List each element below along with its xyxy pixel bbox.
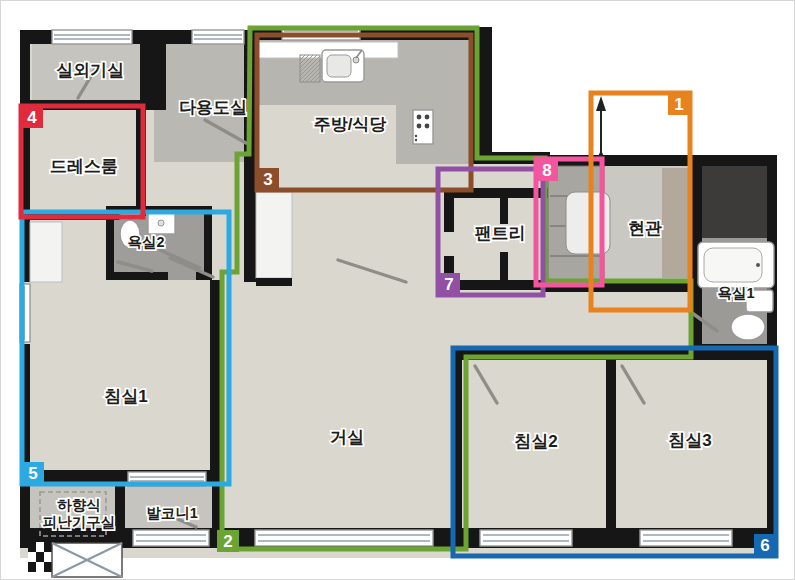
entrance-shoe-closet <box>662 168 690 278</box>
label-living-room: 거실 <box>330 428 364 447</box>
burner-2 <box>425 115 430 120</box>
window-utility-top <box>192 30 244 44</box>
svg-text:6: 6 <box>760 536 769 555</box>
label-entrance: 현관 <box>628 219 662 238</box>
wall-bed2-bed3 <box>606 360 616 530</box>
bath2-sink-drain <box>158 220 164 226</box>
wall-balcony-left <box>115 486 125 542</box>
double-swing-door <box>52 543 122 577</box>
label-utility-room: 다용도실 <box>179 98 247 117</box>
zone-badge-1[interactable]: 1 <box>668 93 690 115</box>
window-bed3-bottom <box>640 530 732 546</box>
bathtub-drain <box>756 263 760 267</box>
entrance-arrow-icon <box>596 96 606 162</box>
zone-badge-8[interactable]: 8 <box>536 159 558 181</box>
burner-1 <box>417 115 422 120</box>
wall-bath2-bottom-a <box>106 272 168 280</box>
window-outdoor-top <box>52 30 132 44</box>
label-dress-room: 드레스룸 <box>50 157 118 176</box>
label-balcony-1: 발코니1 <box>146 505 198 521</box>
zone-badge-7[interactable]: 7 <box>438 273 460 295</box>
stair-checker <box>28 542 52 572</box>
label-bedroom-1: 침실1 <box>104 387 147 406</box>
svg-text:8: 8 <box>542 161 551 180</box>
stove-dot-1 <box>415 135 417 137</box>
window-balcony-bottom <box>133 530 209 546</box>
window-living-bottom <box>255 530 433 546</box>
wall-bath2-right <box>204 206 212 280</box>
label-bathroom-1: 욕실1 <box>717 285 754 301</box>
svg-text:3: 3 <box>263 170 272 189</box>
label-outdoor-unit-room: 실외기실 <box>56 61 124 80</box>
kitchen-sink-basin <box>327 55 351 77</box>
stove-dot-2 <box>415 139 417 141</box>
wall-pantry-inner-a <box>500 198 508 224</box>
wall-pantry-inner-b <box>500 252 508 290</box>
label-evacuation-line2: 피난기구실 <box>43 514 116 530</box>
burner-4 <box>425 124 430 129</box>
label-bedroom-3: 침실3 <box>668 431 711 450</box>
bed1-closet <box>30 222 62 282</box>
zone-badge-6[interactable]: 6 <box>754 534 776 556</box>
wall-pantry-left-a <box>444 198 454 232</box>
svg-text:5: 5 <box>28 464 37 483</box>
label-pantry: 팬트리 <box>475 224 526 243</box>
bathtub-inner <box>704 248 762 282</box>
label-kitchen-dining: 주방/식당 <box>314 115 387 134</box>
hall-closet <box>256 192 292 278</box>
svg-text:7: 7 <box>444 275 453 294</box>
bath1-toilet <box>731 314 765 340</box>
duct-dark-area <box>694 166 777 240</box>
svg-text:1: 1 <box>674 95 683 114</box>
label-bedroom-2: 침실2 <box>514 432 557 451</box>
window-bed2-bottom <box>480 530 572 546</box>
svg-text:2: 2 <box>223 532 232 551</box>
hall-closet-cap <box>256 278 292 286</box>
kitchen-counter-area-right <box>396 40 474 164</box>
svg-text:4: 4 <box>27 108 37 127</box>
zone-badge-2[interactable]: 2 <box>217 530 239 552</box>
dish-rack <box>300 55 320 82</box>
wall-outdoor-right <box>140 30 166 110</box>
label-bathroom-2: 욕실2 <box>127 234 164 250</box>
zone-badge-4[interactable]: 4 <box>21 106 43 128</box>
zone-badge-5[interactable]: 5 <box>22 462 44 484</box>
label-evacuation-line1: 하향식 <box>57 497 101 513</box>
burner-3 <box>417 124 422 129</box>
floorplan-image: 1 2 3 4 5 6 7 8 실외기실 <box>0 0 795 580</box>
zone-badge-3[interactable]: 3 <box>257 168 279 190</box>
